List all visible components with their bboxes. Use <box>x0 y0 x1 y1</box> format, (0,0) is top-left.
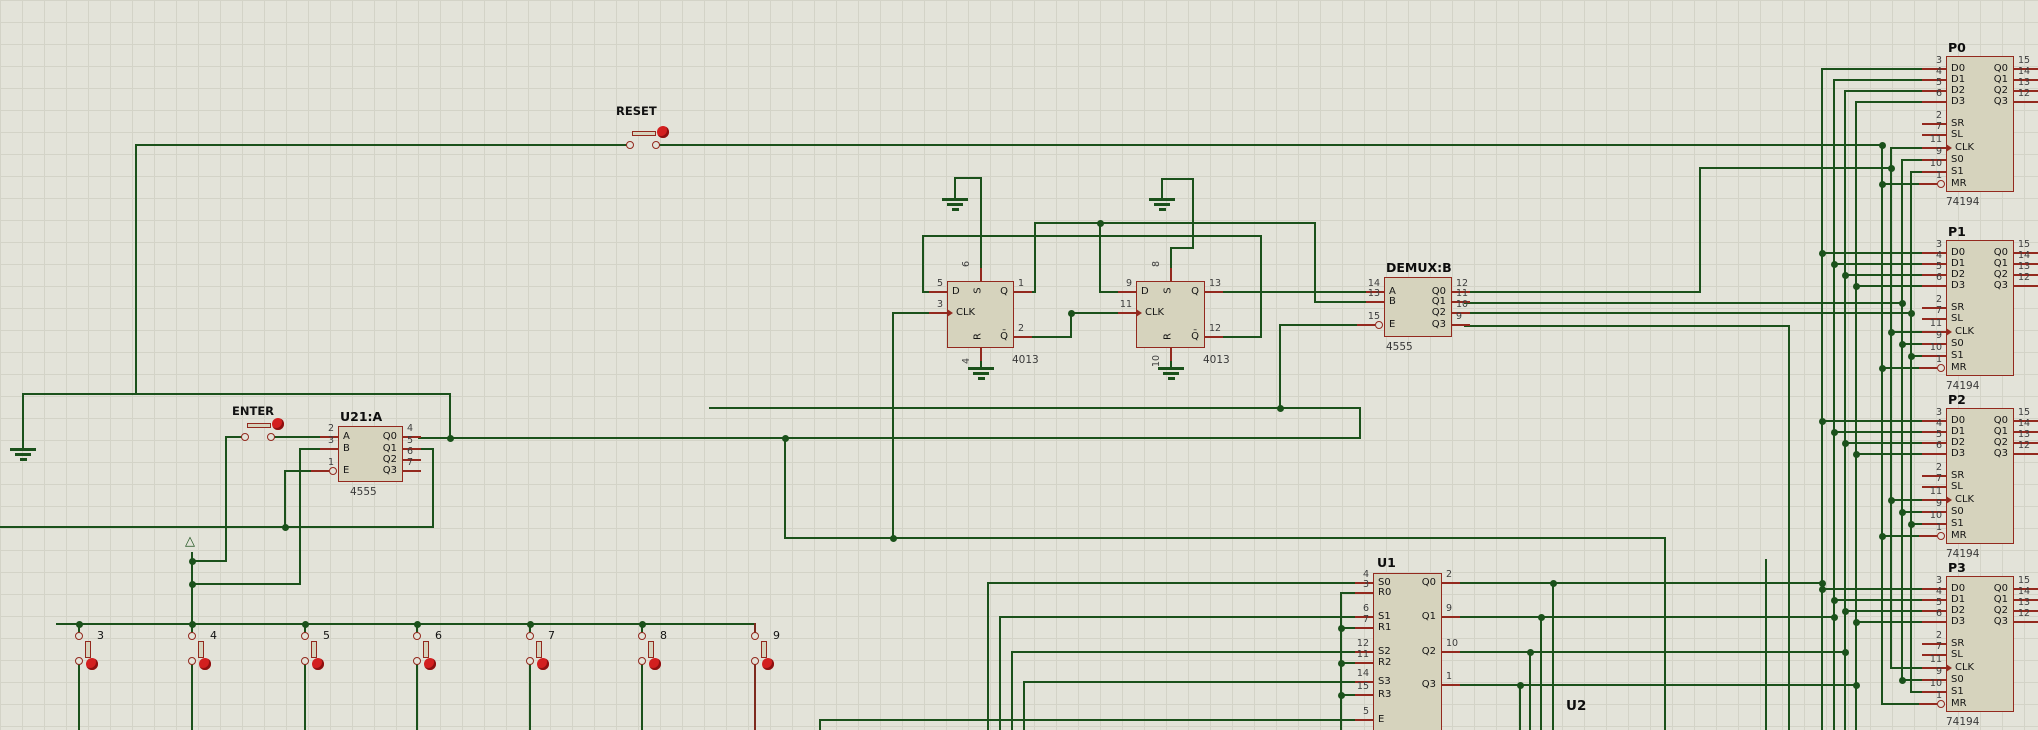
wire <box>1699 167 1892 169</box>
pin-name: CLK <box>1955 662 1974 673</box>
ground-icon <box>952 208 959 211</box>
junction-dot <box>1888 497 1895 504</box>
pin-number: 11 <box>1094 300 1132 310</box>
pin-number: 7 <box>407 458 437 468</box>
pin-number: 1 <box>1904 171 1942 181</box>
junction-dot <box>1879 181 1886 188</box>
pin-stub <box>1919 703 1937 705</box>
pin-number: 12 <box>2018 441 2038 451</box>
pin-stub <box>2014 621 2038 623</box>
wire <box>1844 90 1846 730</box>
ic-ref-label: P1 <box>1948 224 1966 239</box>
pin-stub <box>320 448 338 450</box>
pin-name: R0 <box>1378 587 1391 598</box>
pin-name: Q2 <box>1946 605 2008 616</box>
pin-number: 3 <box>1904 240 1942 250</box>
pin-number: 6 <box>962 254 972 274</box>
wire <box>980 177 982 269</box>
wire <box>1765 559 1767 730</box>
pin-number: 10 <box>1904 343 1942 353</box>
pin-number: 14 <box>2018 251 2038 261</box>
ic-value-label: 4555 <box>350 486 377 498</box>
button-terminal <box>526 632 534 640</box>
pin-name: Q3 <box>1946 280 2008 291</box>
wire <box>416 663 418 730</box>
wire <box>954 177 982 179</box>
junction-dot <box>890 535 897 542</box>
pin-stub <box>1170 268 1172 281</box>
pin-name: Q2 <box>1946 269 2008 280</box>
junction-dot <box>1853 283 1860 290</box>
pin-number: 11 <box>1331 650 1369 660</box>
wire <box>78 663 80 730</box>
button-label: 4 <box>210 629 217 642</box>
ground-icon <box>1163 372 1179 375</box>
wire <box>1881 144 1883 705</box>
wire <box>1699 167 1701 293</box>
pin-number: 9 <box>1904 147 1942 157</box>
wire <box>225 436 227 562</box>
junction-dot <box>527 621 534 628</box>
pushbutton-enter[interactable] <box>247 423 271 428</box>
pin-number: 2 <box>1446 570 1476 580</box>
ic-value-label: 74194 <box>1946 380 1979 392</box>
wire <box>1359 407 1361 439</box>
button-label: 9 <box>773 629 780 642</box>
junction-dot <box>1842 608 1849 615</box>
button-indicator-icon[interactable] <box>762 658 774 670</box>
ground-icon <box>20 458 27 461</box>
pin-number: 11 <box>1904 487 1942 497</box>
pin-name: SL <box>1951 129 1963 140</box>
wire <box>135 144 137 395</box>
wire <box>191 583 301 585</box>
ic-value-label: 74194 <box>1946 716 1979 728</box>
ic-ref-label: P0 <box>1948 40 1966 55</box>
pin-number: 6 <box>1904 609 1942 619</box>
pin-stub <box>1919 183 1937 185</box>
junction-dot <box>1550 580 1557 587</box>
wire <box>1314 301 1367 303</box>
pin-stub <box>1452 324 1470 326</box>
pin-number: 6 <box>407 447 437 457</box>
button-terminal <box>638 632 646 640</box>
pin-number: 7 <box>1904 642 1942 652</box>
pin-stub <box>1205 336 1223 338</box>
pin-number: 10 <box>1446 639 1476 649</box>
pin-name: Q3 <box>338 465 397 476</box>
pin-name: Q2 <box>1384 307 1446 318</box>
pin-stub <box>1355 719 1373 721</box>
button-label: 5 <box>323 629 330 642</box>
pin-stub <box>1170 348 1172 361</box>
button-label: 3 <box>97 629 104 642</box>
pin-stub <box>2014 453 2038 455</box>
pin-stub <box>1442 684 1460 686</box>
pin-number: 13 <box>2018 598 2038 608</box>
pin-name: S0 <box>1951 674 1964 685</box>
button-indicator-icon[interactable] <box>649 658 661 670</box>
ground-icon <box>978 377 985 380</box>
wire <box>1833 79 1835 730</box>
pin-number: 9 <box>1904 331 1942 341</box>
pin-number: 11 <box>1456 289 1486 299</box>
pushbutton-key-3[interactable] <box>85 641 91 658</box>
pin-stub <box>929 312 947 314</box>
pin-stub <box>2014 285 2038 287</box>
pin-name: Q2 <box>1373 646 1436 657</box>
button-terminal <box>652 141 660 149</box>
wire <box>641 663 643 730</box>
pin-name: Q3 <box>1946 96 2008 107</box>
pin-number: 5 <box>407 436 437 446</box>
arrow-marker-icon: △ <box>185 535 195 548</box>
wire <box>1855 621 1929 623</box>
pin-name: S0 <box>1951 506 1964 517</box>
junction-dot <box>639 621 646 628</box>
pin-number: 5 <box>1331 707 1369 717</box>
pushbutton-key-6[interactable] <box>423 641 429 658</box>
clock-triangle-icon <box>1946 144 1952 152</box>
pushbutton-key-8[interactable] <box>648 641 654 658</box>
pin-number: 9 <box>1904 667 1942 677</box>
wire <box>754 663 756 730</box>
wire <box>1855 453 1929 455</box>
pin-number: 7 <box>1904 474 1942 484</box>
wire <box>418 437 1361 439</box>
pin-number: 3 <box>1904 56 1942 66</box>
pin-number: 9 <box>1456 312 1486 322</box>
wire <box>1540 616 1542 730</box>
wire <box>1788 325 1790 730</box>
button-terminal <box>241 433 249 441</box>
button-terminal <box>751 657 759 665</box>
pin-name: S <box>1163 281 1174 301</box>
pin-name: S0 <box>1951 338 1964 349</box>
pin-number: 4 <box>407 424 437 434</box>
junction-dot <box>1338 660 1345 667</box>
pin-number: 1 <box>1904 355 1942 365</box>
pin-name: S1 <box>1951 686 1964 697</box>
wire <box>1890 147 1892 669</box>
pin-number: 1 <box>1904 691 1942 701</box>
pin-stub <box>1357 324 1375 326</box>
wire <box>999 616 1001 730</box>
wire <box>1314 222 1316 303</box>
pin-stub <box>403 470 421 472</box>
pin-name: R2 <box>1378 657 1391 668</box>
wire <box>284 470 286 528</box>
ic-value-label: 74194 <box>1946 548 1979 560</box>
junction-dot <box>1819 586 1826 593</box>
pin-name: Q1 <box>1946 594 2008 605</box>
pin-number: 14 <box>2018 67 2038 77</box>
pin-stub <box>1366 301 1384 303</box>
schematic-canvas: △U240135D3CLK1Q2Q̄6S4R40139D11CLK13Q12Q̄… <box>0 0 2038 730</box>
wire <box>1279 324 1367 326</box>
pin-name: Q2 <box>338 454 397 465</box>
wire <box>56 623 756 625</box>
ground-icon <box>1154 203 1170 206</box>
pin-number: 14 <box>2018 587 2038 597</box>
wire <box>892 312 930 314</box>
pin-name: CLK <box>1955 142 1974 153</box>
pin-number: 5 <box>905 279 943 289</box>
button-indicator-icon[interactable] <box>199 658 211 670</box>
part-label: U2 <box>1566 698 1586 714</box>
pushbutton-key-4[interactable] <box>198 641 204 658</box>
pushbutton-key-5[interactable] <box>311 641 317 658</box>
pin-name: Q3 <box>1384 319 1446 330</box>
pin-stub <box>1442 582 1460 584</box>
ground-icon <box>942 198 968 201</box>
pin-name: Q2 <box>1946 85 2008 96</box>
pin-stub <box>1442 616 1460 618</box>
wire <box>892 312 894 539</box>
pin-name: Q3 <box>1946 448 2008 459</box>
junction-dot <box>782 435 789 442</box>
wire <box>1011 651 1358 653</box>
ic-ref-label: DEMUX:B <box>1386 260 1452 275</box>
pin-name: SL <box>1951 313 1963 324</box>
button-indicator-icon[interactable] <box>272 418 284 430</box>
pin-name: S0 <box>1951 154 1964 165</box>
pin-number: 13 <box>1209 279 1239 289</box>
pin-stub <box>1205 291 1223 293</box>
ground-icon <box>15 453 31 456</box>
junction-dot <box>1888 329 1895 336</box>
wire <box>1011 651 1013 730</box>
button-terminal <box>751 632 759 640</box>
pin-name: Q3 <box>1946 616 2008 627</box>
button-terminal <box>75 657 83 665</box>
pin-number: 15 <box>2018 240 2038 250</box>
pin-number: 15 <box>1331 682 1369 692</box>
pin-number: 15 <box>2018 56 2038 66</box>
ground-icon <box>1159 208 1166 211</box>
pin-number: 10 <box>1904 159 1942 169</box>
pin-number: 5 <box>1904 598 1942 608</box>
pin-number: 14 <box>1331 669 1369 679</box>
pin-name: Q1 <box>1373 611 1436 622</box>
wire <box>784 537 1666 539</box>
pin-number: 11 <box>1904 319 1942 329</box>
wire <box>1901 159 1903 681</box>
wire <box>1099 291 1119 293</box>
pin-name: R <box>973 327 984 347</box>
junction-dot <box>1338 692 1345 699</box>
button-indicator-icon[interactable] <box>312 658 324 670</box>
junction-dot <box>1879 365 1886 372</box>
wire <box>1454 582 1823 584</box>
wire <box>1552 582 1554 730</box>
button-terminal <box>267 433 275 441</box>
pin-number: 2 <box>1904 295 1942 305</box>
clock-triangle-icon <box>1946 328 1952 336</box>
pin-number: 2 <box>1018 324 1048 334</box>
pin-stub <box>311 470 329 472</box>
pin-number: 9 <box>1904 499 1942 509</box>
pin-number: 11 <box>1904 135 1942 145</box>
wire <box>529 663 531 730</box>
pin-name: Q2 <box>1946 437 2008 448</box>
pin-stub <box>1355 592 1373 594</box>
pin-stub <box>1118 312 1136 314</box>
junction-dot <box>1831 614 1838 621</box>
wire <box>1170 247 1172 269</box>
junction-dot <box>1338 625 1345 632</box>
pin-stub <box>1355 627 1373 629</box>
pin-name: Q0 <box>1946 583 2008 594</box>
pin-name: CLK <box>956 307 975 318</box>
wire <box>1855 101 1857 730</box>
pin-number: 1 <box>1018 279 1048 289</box>
button-terminal <box>413 632 421 640</box>
pin-stub <box>1014 291 1032 293</box>
wire <box>1855 101 1929 103</box>
pin-number: 4 <box>1904 251 1942 261</box>
pin-number: 15 <box>1342 312 1380 322</box>
junction-dot <box>1879 142 1886 149</box>
pin-stub <box>929 291 947 293</box>
pin-name: S1 <box>1951 166 1964 177</box>
pin-name: SR <box>1951 302 1964 313</box>
wire <box>1454 616 1835 618</box>
pin-stub <box>1922 101 1946 103</box>
wire <box>449 393 451 439</box>
pin-number: 10 <box>1904 511 1942 521</box>
junction-dot <box>1879 533 1886 540</box>
clock-triangle-icon <box>1946 664 1952 672</box>
pushbutton-key-7[interactable] <box>536 641 542 658</box>
pin-name: Q3 <box>1373 679 1436 690</box>
wire <box>659 144 1883 146</box>
button-terminal <box>413 657 421 665</box>
pin-stub <box>1919 367 1937 369</box>
junction-dot <box>1888 165 1895 172</box>
wire <box>22 393 451 395</box>
pin-name: SL <box>1951 649 1963 660</box>
ic-ref-label: P2 <box>1948 392 1966 407</box>
pin-name: CLK <box>1145 307 1164 318</box>
clock-triangle-icon <box>1946 496 1952 504</box>
clock-triangle-icon <box>947 309 953 317</box>
pin-number: 4 <box>1904 67 1942 77</box>
pin-number: 14 <box>2018 419 2038 429</box>
inverter-bubble-icon <box>1937 364 1945 372</box>
wire <box>1260 235 1262 338</box>
junction-dot <box>447 435 454 442</box>
pin-name: Q1 <box>1946 74 2008 85</box>
pin-number: 1 <box>296 458 334 468</box>
pushbutton-reset[interactable] <box>632 131 656 136</box>
pin-number: 4 <box>962 351 972 371</box>
pin-stub <box>2014 101 2038 103</box>
wire <box>225 436 242 438</box>
wire <box>191 663 193 730</box>
pin-name: MR <box>1951 178 1967 189</box>
ic-value-label: 4555 <box>1386 341 1413 353</box>
pin-name: MR <box>1951 698 1967 709</box>
wire <box>1454 651 1846 653</box>
pin-number: 6 <box>1904 273 1942 283</box>
junction-dot <box>1831 261 1838 268</box>
pin-name: SL <box>1951 481 1963 492</box>
junction-dot <box>1819 418 1826 425</box>
wire <box>1025 336 1072 338</box>
pin-name: R1 <box>1378 622 1391 633</box>
junction-dot <box>1842 272 1849 279</box>
wire <box>299 448 301 585</box>
pin-name: R3 <box>1378 689 1391 700</box>
wire <box>1217 336 1262 338</box>
pushbutton-key-9[interactable] <box>761 641 767 658</box>
ground-icon <box>1168 377 1175 380</box>
pin-name: CLK <box>1955 494 1974 505</box>
pin-name: E <box>1378 714 1384 725</box>
ic-value-label: 74194 <box>1946 196 1979 208</box>
wire <box>1464 291 1701 293</box>
ic-ref-label: U1 <box>1377 555 1396 570</box>
wire <box>819 719 1358 721</box>
wire <box>819 719 821 730</box>
wire <box>922 235 1262 237</box>
wire <box>1023 681 1358 683</box>
pin-number: 12 <box>2018 89 2038 99</box>
inverter-bubble-icon <box>1937 532 1945 540</box>
button-indicator-icon[interactable] <box>424 658 436 670</box>
wire <box>1519 684 1521 730</box>
pin-number: 6 <box>1331 604 1369 614</box>
pin-name: SR <box>1951 638 1964 649</box>
pin-name: Q1 <box>338 443 397 454</box>
pin-name: MR <box>1951 530 1967 541</box>
wire <box>987 582 989 730</box>
pin-number: 9 <box>1094 279 1132 289</box>
pin-name: SR <box>1951 118 1964 129</box>
button-terminal <box>301 657 309 665</box>
pin-number: 2 <box>296 424 334 434</box>
inverter-bubble-icon <box>1375 321 1383 329</box>
pin-name: SR <box>1951 470 1964 481</box>
pin-number: 12 <box>1331 639 1369 649</box>
pin-name: Q0 <box>1946 63 2008 74</box>
wire <box>709 407 1361 409</box>
wire <box>1664 537 1666 730</box>
pin-number: 13 <box>2018 78 2038 88</box>
wire <box>1529 651 1531 730</box>
pin-name: R <box>1163 327 1174 347</box>
pin-number: 8 <box>1152 254 1162 274</box>
button-indicator-icon[interactable] <box>657 126 669 138</box>
wire <box>1070 312 1119 314</box>
pin-number: 7 <box>1904 306 1942 316</box>
wire <box>999 616 1358 618</box>
wire <box>1855 285 1929 287</box>
pin-name: Q1 <box>1946 426 2008 437</box>
junction-dot <box>1853 619 1860 626</box>
pin-stub <box>1919 535 1937 537</box>
button-indicator-icon[interactable] <box>86 658 98 670</box>
inverter-bubble-icon <box>329 467 337 475</box>
wire <box>784 437 786 539</box>
button-indicator-icon[interactable] <box>537 658 549 670</box>
wire <box>0 526 434 528</box>
wire <box>1034 222 1316 224</box>
wire <box>135 144 627 146</box>
pin-number: 6 <box>1904 89 1942 99</box>
pin-name: MR <box>1951 362 1967 373</box>
